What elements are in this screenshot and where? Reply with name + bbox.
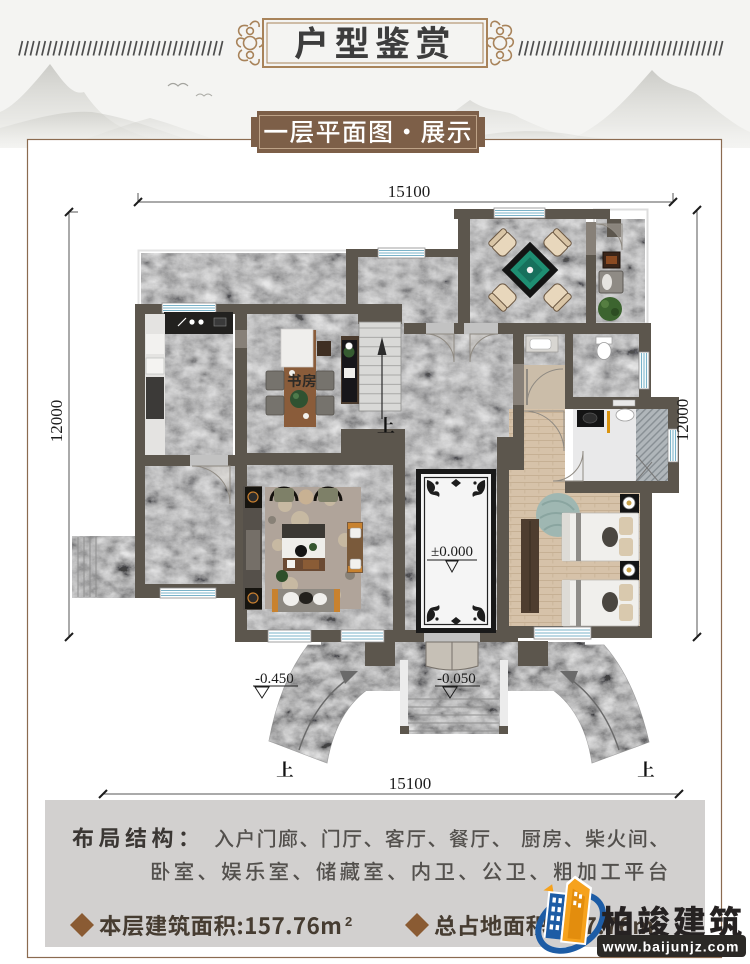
svg-text:-0.050: -0.050 [437, 671, 476, 687]
svg-text:15100: 15100 [389, 774, 432, 793]
svg-text:15100: 15100 [388, 182, 431, 201]
svg-text:www.baijunjz.com: www.baijunjz.com [602, 939, 740, 955]
svg-text:-0.450: -0.450 [255, 671, 294, 687]
svg-text:±0.000: ±0.000 [431, 544, 473, 560]
svg-text:12000: 12000 [47, 400, 66, 443]
svg-text:12000: 12000 [673, 399, 692, 442]
svg-text:2: 2 [345, 914, 352, 929]
